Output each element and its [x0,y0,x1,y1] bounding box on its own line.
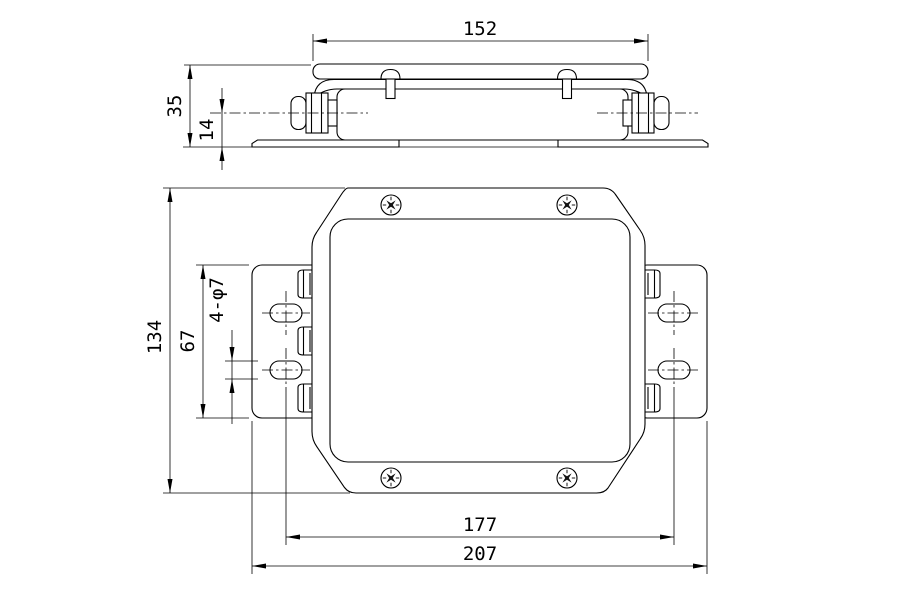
terminal-studs-left [298,270,313,412]
dimension-gland-center-height: 14 [196,88,225,170]
mounting-flange-left-side [252,140,399,147]
dim-overall-depth-label: 134 [144,320,166,354]
engineering-drawing: 152 35 14 [0,0,900,590]
dim-body-height-label: 35 [164,95,186,118]
dim-bracket-height-label: 67 [177,330,199,353]
corner-screw [381,195,401,215]
bottom-view: 134 67 4-φ7 177 [144,188,707,574]
technical-drawing-canvas: 152 35 14 [0,0,900,590]
dim-gland-center-height-label: 14 [196,119,218,142]
dim-mounting-holes-label: 4-φ7 [206,277,228,323]
corner-screw [381,468,401,488]
corner-screw [557,195,577,215]
corner-screw [557,468,577,488]
dim-hole-spacing-label: 177 [463,514,497,536]
mounting-flange-right-side [558,140,708,147]
cover-plate [313,64,648,79]
filter-body-side [337,89,628,140]
case-outline [312,188,645,493]
dimension-cover-width: 152 [313,18,648,61]
side-view: 152 35 14 [164,18,708,170]
dimension-body-height: 35 [164,65,311,147]
dimension-mounting-holes: 4-φ7 [206,277,258,424]
dim-cover-width-label: 152 [463,18,497,40]
dim-overall-width-label: 207 [463,543,497,565]
